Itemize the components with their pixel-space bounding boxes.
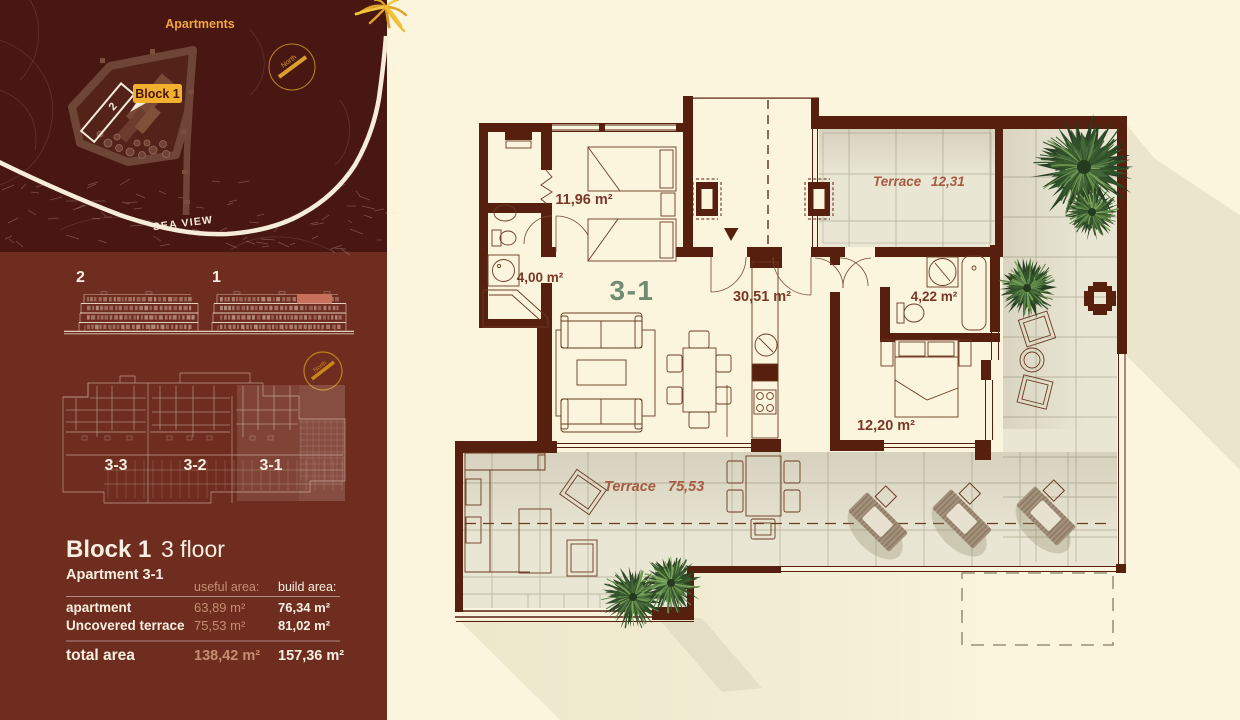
svg-text:3-3: 3-3: [104, 457, 127, 474]
svg-text:76,34 m²: 76,34 m²: [278, 600, 331, 615]
svg-text:total area: total area: [66, 647, 135, 664]
svg-text:157,36 m²: 157,36 m²: [278, 648, 344, 664]
svg-text:12,20 m²: 12,20 m²: [857, 418, 915, 434]
svg-text:Terrace: Terrace: [604, 479, 656, 495]
svg-text:Uncovered terrace: Uncovered terrace: [66, 618, 185, 633]
svg-text:138,42 m²: 138,42 m²: [194, 648, 260, 664]
svg-text:3 floor: 3 floor: [161, 536, 225, 562]
svg-text:11,96 m²: 11,96 m²: [555, 192, 612, 208]
svg-text:Block 1: Block 1: [66, 536, 151, 563]
svg-text:2: 2: [76, 269, 85, 286]
svg-text:81,02 m²: 81,02 m²: [278, 618, 331, 633]
svg-text:build area:: build area:: [278, 580, 336, 594]
svg-text:useful area:: useful area:: [194, 580, 259, 594]
svg-text:Apartment 3-1: Apartment 3-1: [66, 567, 164, 583]
svg-text:3-1: 3-1: [259, 457, 282, 474]
svg-text:3-1: 3-1: [610, 275, 655, 306]
svg-text:Terrace: Terrace: [873, 174, 922, 189]
svg-text:12,31: 12,31: [931, 174, 965, 189]
svg-text:3-2: 3-2: [183, 457, 206, 474]
svg-text:75,53 m²: 75,53 m²: [194, 618, 246, 633]
svg-text:30,51 m²: 30,51 m²: [733, 289, 791, 305]
svg-text:1: 1: [212, 269, 221, 286]
svg-text:Apartments: Apartments: [165, 17, 235, 31]
svg-text:4,00 m²: 4,00 m²: [517, 270, 564, 285]
svg-text:Block 1: Block 1: [135, 87, 180, 101]
svg-text:4,22 m²: 4,22 m²: [911, 289, 958, 304]
svg-text:75,53: 75,53: [668, 479, 704, 495]
svg-text:63,89 m²: 63,89 m²: [194, 600, 246, 615]
svg-text:apartment: apartment: [66, 600, 132, 615]
